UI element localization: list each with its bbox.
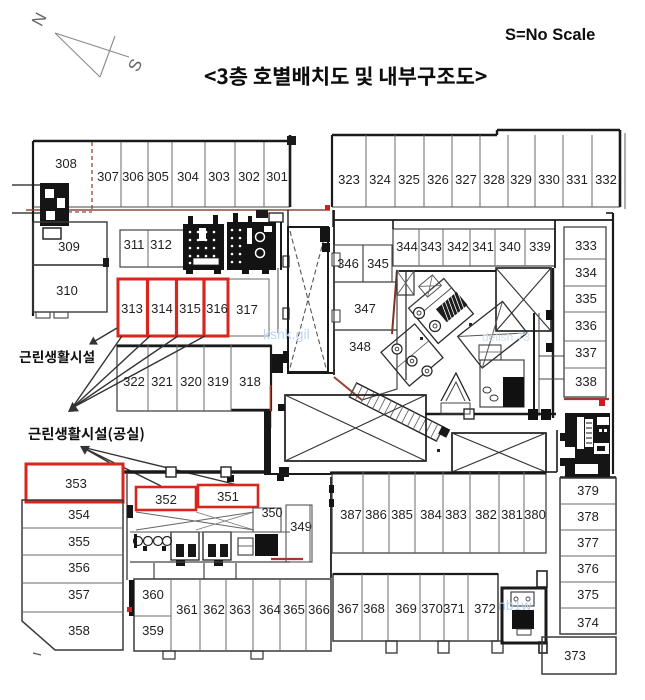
svg-text:327: 327 xyxy=(455,172,477,187)
svg-text:332: 332 xyxy=(595,172,617,187)
svg-text:304: 304 xyxy=(177,169,199,184)
svg-text:349: 349 xyxy=(290,519,312,534)
svg-text:352: 352 xyxy=(155,492,177,507)
svg-text:311: 311 xyxy=(124,237,145,252)
svg-text:S=No Scale: S=No Scale xyxy=(505,26,595,44)
svg-text:322: 322 xyxy=(123,374,145,389)
svg-text:371: 371 xyxy=(443,601,465,616)
svg-text:301: 301 xyxy=(266,169,288,184)
svg-text:335: 335 xyxy=(575,291,597,306)
svg-text:381: 381 xyxy=(501,507,523,522)
svg-text:372: 372 xyxy=(474,601,496,616)
svg-text:320: 320 xyxy=(180,374,202,389)
svg-text:336: 336 xyxy=(575,318,597,333)
svg-text:357: 357 xyxy=(68,587,90,602)
svg-text:329: 329 xyxy=(510,172,532,187)
svg-text:355: 355 xyxy=(68,534,90,549)
svg-text:333: 333 xyxy=(575,238,597,253)
svg-text:350: 350 xyxy=(262,506,283,520)
svg-text:316: 316 xyxy=(206,301,228,316)
svg-text:365: 365 xyxy=(283,602,305,617)
svg-text:361: 361 xyxy=(176,602,198,617)
svg-text:334: 334 xyxy=(575,265,597,280)
svg-text:384: 384 xyxy=(420,507,442,522)
svg-text:340: 340 xyxy=(499,239,521,254)
svg-text:364: 364 xyxy=(259,602,281,617)
svg-text:362: 362 xyxy=(203,602,225,617)
svg-text:310: 310 xyxy=(56,283,78,298)
svg-text:360: 360 xyxy=(142,587,164,602)
svg-text:318: 318 xyxy=(239,374,261,389)
svg-text:307: 307 xyxy=(97,169,119,184)
svg-text:363: 363 xyxy=(229,602,251,617)
svg-text:356: 356 xyxy=(68,560,90,575)
svg-text:378: 378 xyxy=(577,509,599,524)
svg-text:341: 341 xyxy=(472,239,494,254)
svg-text:351: 351 xyxy=(217,489,239,504)
svg-text:328: 328 xyxy=(483,172,505,187)
svg-text:366: 366 xyxy=(308,602,330,617)
svg-text:383: 383 xyxy=(445,507,467,522)
svg-text:368: 368 xyxy=(363,601,385,616)
svg-text:317: 317 xyxy=(236,302,258,317)
svg-text:370: 370 xyxy=(421,601,443,616)
svg-text:342: 342 xyxy=(447,239,469,254)
svg-text:377: 377 xyxy=(577,535,599,550)
svg-text:321: 321 xyxy=(151,374,173,389)
svg-text:369: 369 xyxy=(395,601,417,616)
svg-text:305: 305 xyxy=(147,169,169,184)
svg-text:330: 330 xyxy=(538,172,560,187)
svg-text:344: 344 xyxy=(396,239,418,254)
svg-text:309: 309 xyxy=(58,239,80,254)
svg-text:359: 359 xyxy=(142,623,164,638)
svg-text:326: 326 xyxy=(427,172,449,187)
svg-text:308: 308 xyxy=(55,156,77,171)
svg-text:346: 346 xyxy=(337,256,359,271)
svg-text:386: 386 xyxy=(365,507,387,522)
svg-text:376: 376 xyxy=(577,561,599,576)
svg-text:338: 338 xyxy=(575,374,597,389)
svg-text:337: 337 xyxy=(575,345,597,360)
svg-text:345: 345 xyxy=(367,256,389,271)
svg-text:379: 379 xyxy=(577,483,599,498)
svg-text:387: 387 xyxy=(340,507,362,522)
svg-text:302: 302 xyxy=(238,169,260,184)
svg-text:339: 339 xyxy=(529,239,551,254)
svg-text:nb1w: nb1w xyxy=(498,597,532,613)
svg-text:382: 382 xyxy=(475,507,497,522)
svg-text:312: 312 xyxy=(150,237,172,252)
svg-text:385: 385 xyxy=(391,507,413,522)
svg-text:303: 303 xyxy=(208,169,230,184)
svg-text:343: 343 xyxy=(420,239,442,254)
svg-text:315: 315 xyxy=(179,301,201,316)
svg-text:348: 348 xyxy=(349,339,371,354)
svg-text:353: 353 xyxy=(65,476,87,491)
svg-text:313: 313 xyxy=(121,301,143,316)
svg-text:380: 380 xyxy=(524,507,546,522)
svg-text:323: 323 xyxy=(338,172,360,187)
svg-text:375: 375 xyxy=(577,587,599,602)
svg-text:374: 374 xyxy=(577,615,599,630)
svg-text:358: 358 xyxy=(68,623,90,638)
svg-text:347: 347 xyxy=(354,301,376,316)
svg-text:306: 306 xyxy=(122,169,144,184)
svg-text:kshk.gil: kshk.gil xyxy=(263,326,310,342)
svg-text:367: 367 xyxy=(337,601,359,616)
svg-text:319: 319 xyxy=(207,374,229,389)
svg-text:314: 314 xyxy=(151,301,173,316)
svg-text:373: 373 xyxy=(564,648,586,663)
svg-text:325: 325 xyxy=(398,172,420,187)
svg-text:324: 324 xyxy=(369,172,391,187)
svg-text:331: 331 xyxy=(566,172,588,187)
svg-text:354: 354 xyxy=(68,507,90,522)
svg-text:delish 73: delish 73 xyxy=(482,330,530,344)
